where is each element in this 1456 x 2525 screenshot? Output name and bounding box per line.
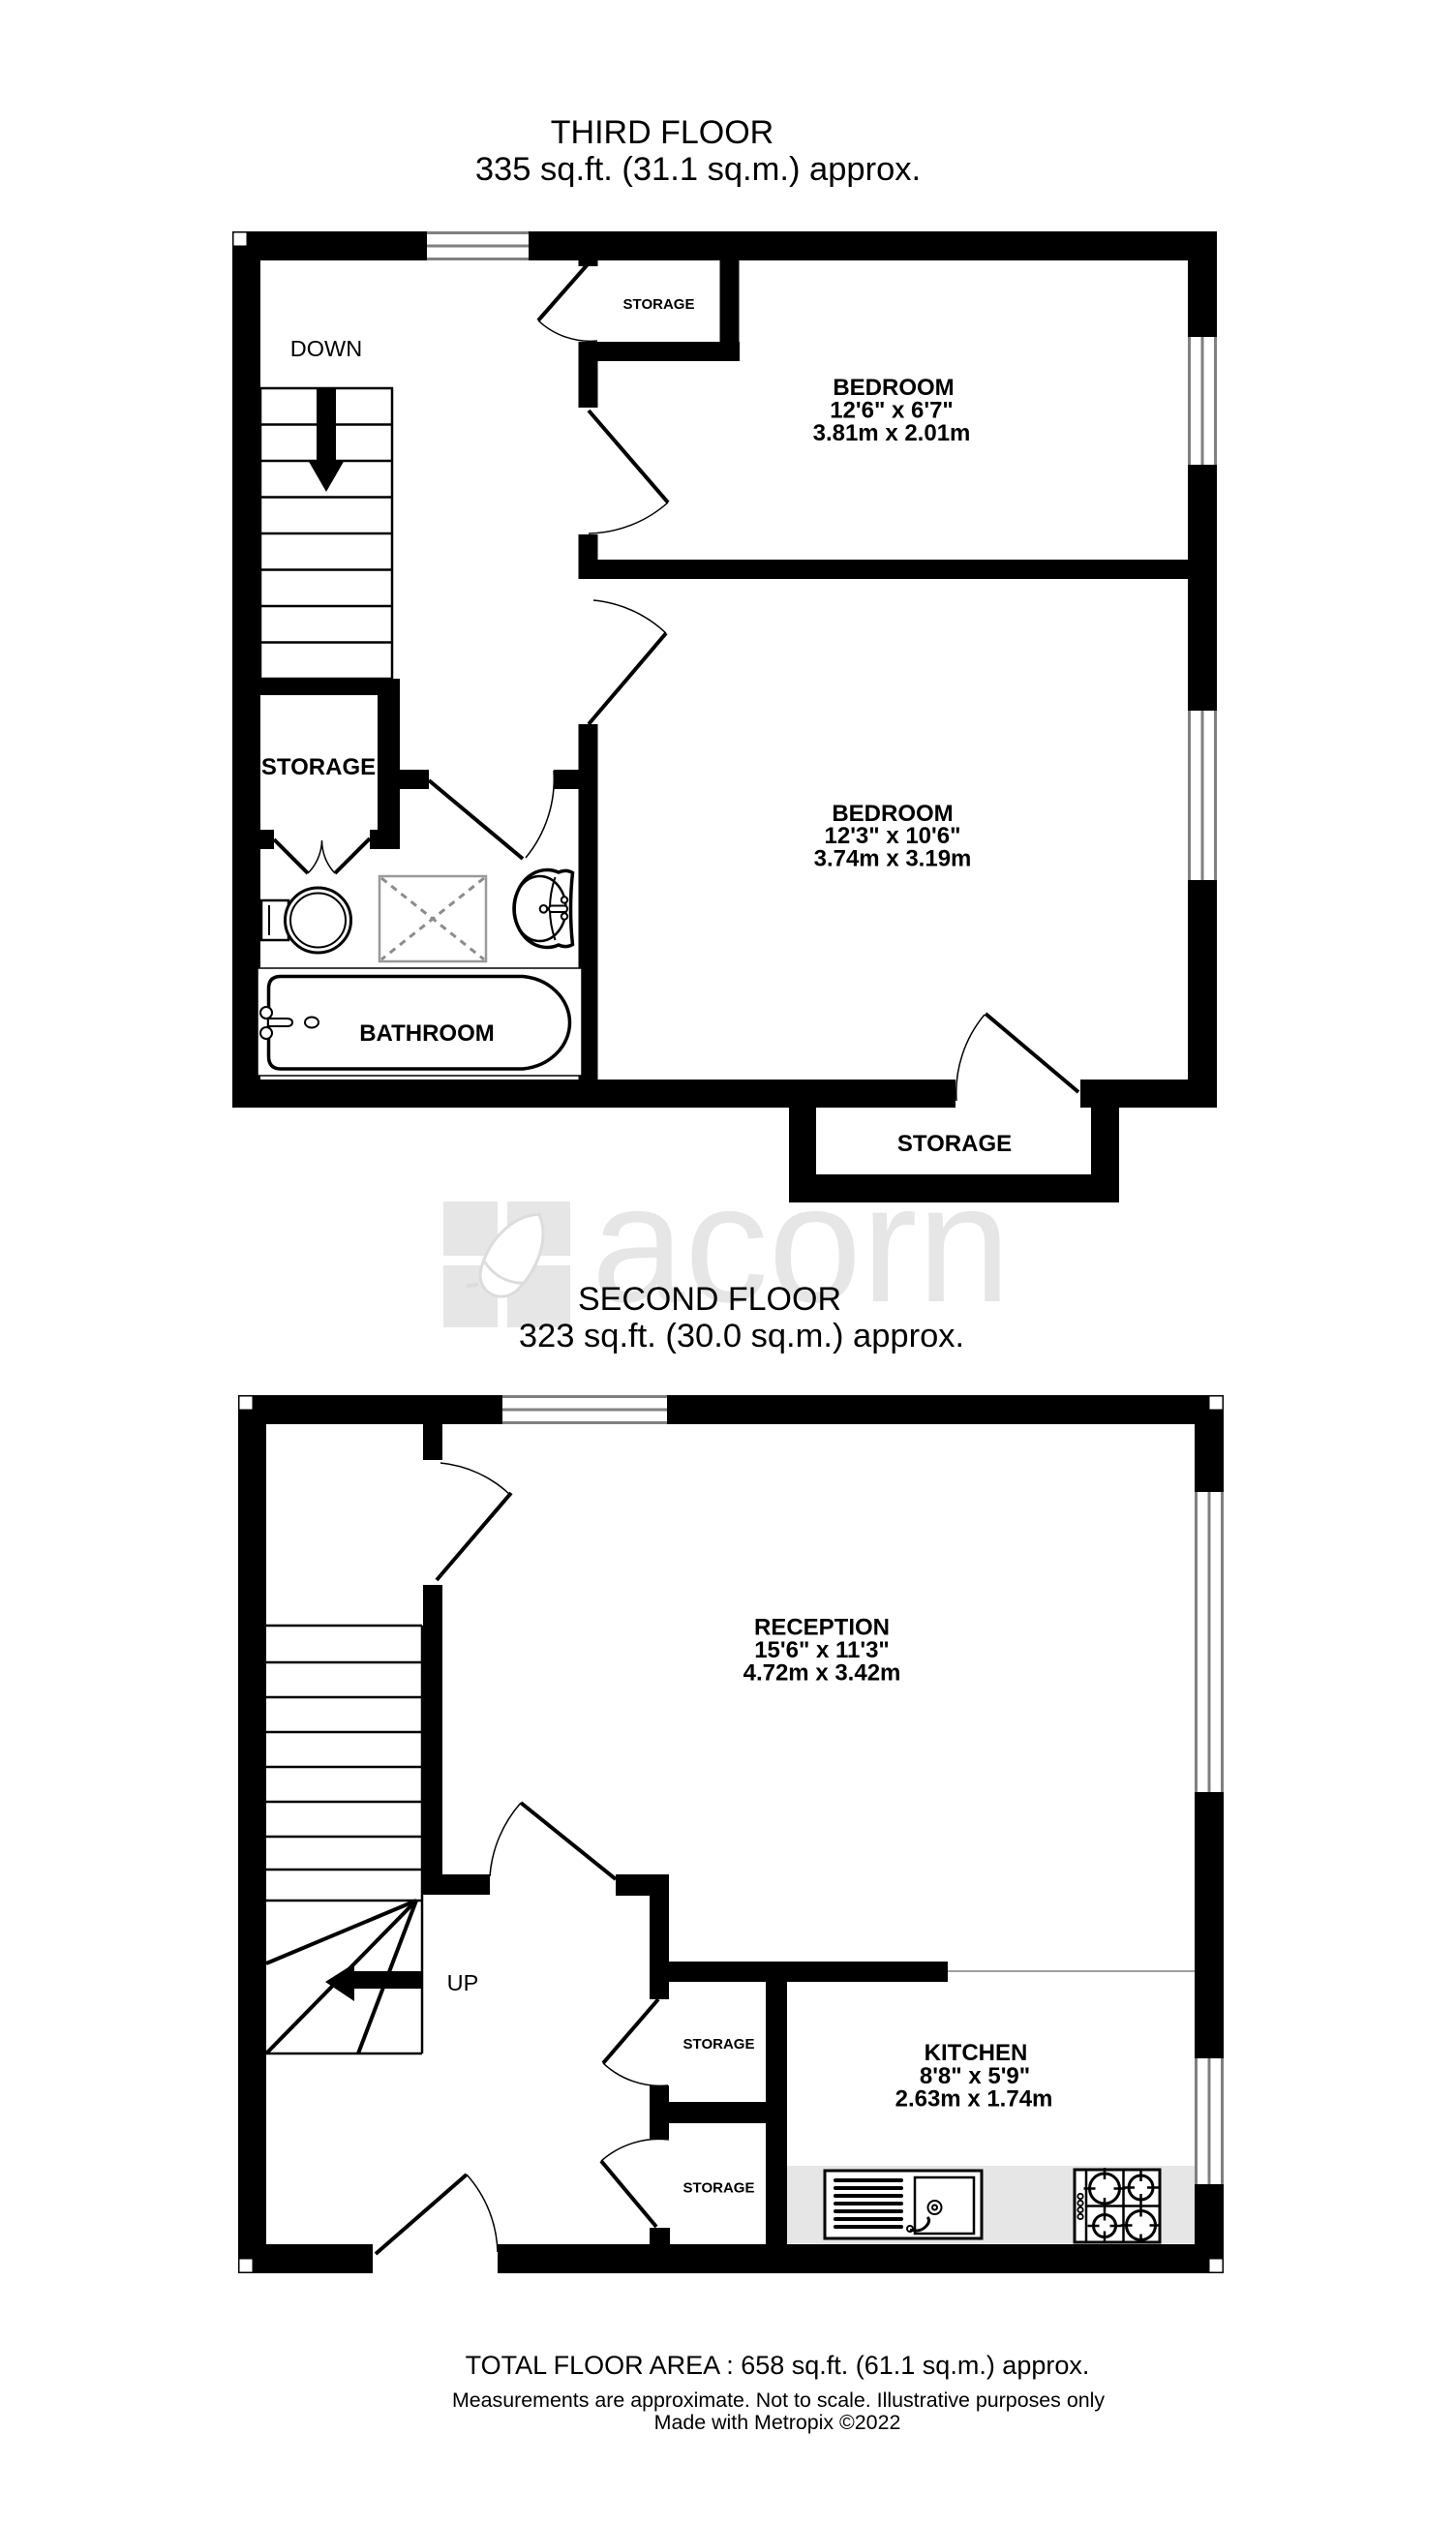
- svg-text:3.81m x 2.01m: 3.81m x 2.01m: [813, 420, 971, 446]
- svg-text:STORAGE: STORAGE: [683, 2036, 755, 2053]
- svg-text:STORAGE: STORAGE: [683, 2180, 755, 2197]
- svg-text:Made with Metropix ©2022: Made with Metropix ©2022: [654, 2411, 901, 2434]
- svg-text:STORAGE: STORAGE: [623, 296, 695, 313]
- svg-text:SECOND FLOOR: SECOND FLOOR: [578, 1281, 841, 1318]
- svg-text:335 sq.ft. (31.1 sq.m.) approx: 335 sq.ft. (31.1 sq.m.) approx.: [475, 151, 921, 188]
- svg-text:STORAGE: STORAGE: [261, 754, 376, 780]
- svg-text:THIRD FLOOR: THIRD FLOOR: [551, 114, 773, 151]
- svg-text:UP: UP: [447, 1970, 479, 1995]
- svg-text:TOTAL FLOOR AREA : 658 sq.ft.: TOTAL FLOOR AREA : 658 sq.ft. (61.1 sq.m…: [466, 2351, 1090, 2380]
- svg-text:Measurements are approximate.: Measurements are approximate. Not to sca…: [452, 2388, 1105, 2412]
- svg-text:DOWN: DOWN: [290, 336, 362, 361]
- svg-text:KITCHEN: KITCHEN: [925, 2040, 1028, 2066]
- svg-text:3.74m x 3.19m: 3.74m x 3.19m: [814, 846, 972, 872]
- svg-text:BATHROOM: BATHROOM: [359, 1020, 495, 1047]
- svg-text:2.63m x 1.74m: 2.63m x 1.74m: [895, 2086, 1053, 2113]
- svg-text:STORAGE: STORAGE: [897, 1131, 1012, 1157]
- svg-text:4.72m x 3.42m: 4.72m x 3.42m: [743, 1660, 901, 1687]
- svg-text:323 sq.ft. (30.0 sq.m.) approx: 323 sq.ft. (30.0 sq.m.) approx.: [519, 1318, 964, 1354]
